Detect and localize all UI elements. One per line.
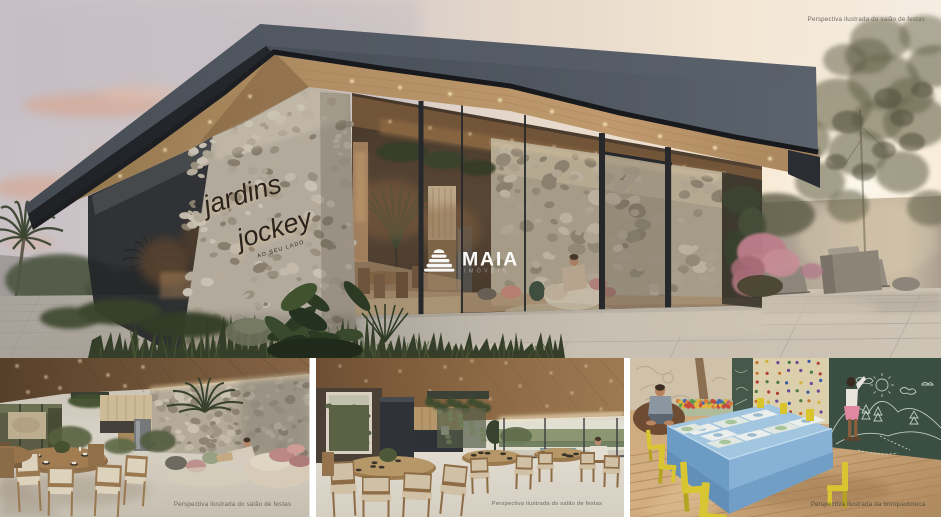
svg-text:Perspectiva ilustrada do salão: Perspectiva ilustrada do salão de festas (492, 501, 602, 507)
svg-text:Perspectiva ilustrada do salão: Perspectiva ilustrada do salão de festas (808, 16, 925, 23)
svg-text:IMÓVEIS: IMÓVEIS (464, 268, 509, 275)
svg-text:Perspectiva ilustrada do salão: Perspectiva ilustrada do salão de festas (174, 501, 291, 508)
svg-text:MAIA: MAIA (462, 249, 519, 271)
svg-text:Perspectiva ilustrada da brinq: Perspectiva ilustrada da brinquedoteca (811, 501, 926, 508)
